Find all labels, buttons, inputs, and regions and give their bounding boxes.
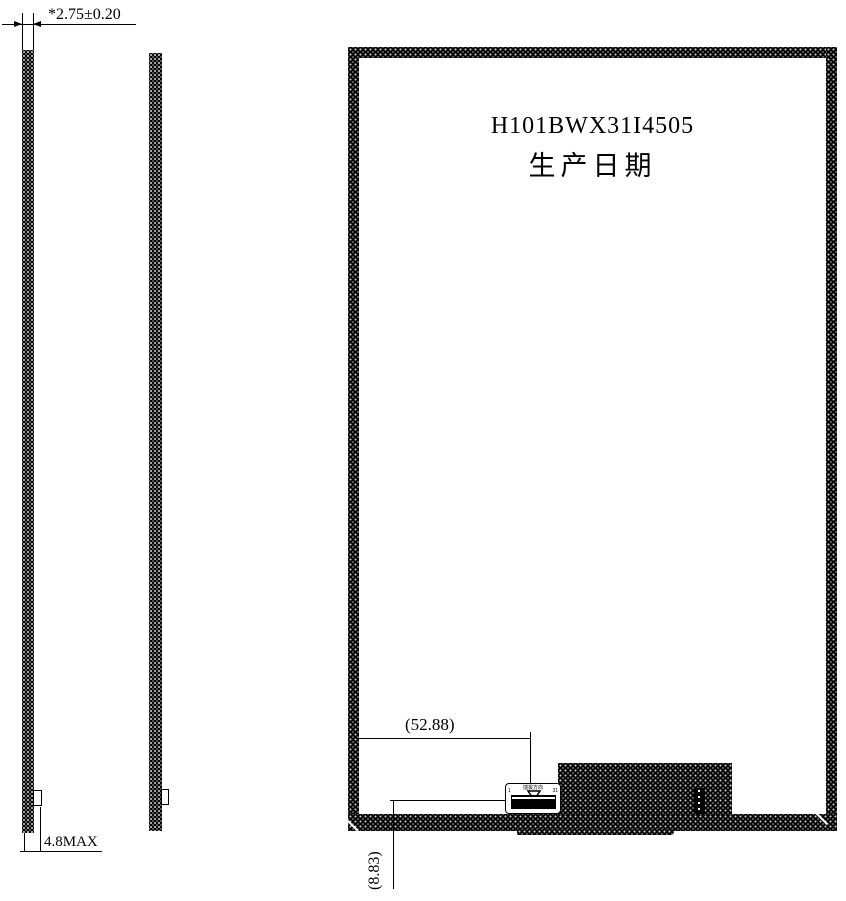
connector-contact-bar [511, 795, 556, 809]
dimension-line [20, 851, 102, 852]
extension-line [22, 13, 23, 51]
extension-line [33, 13, 34, 51]
slot-dots [698, 790, 700, 812]
fpc-protrusion [517, 829, 674, 835]
engineering-drawing: *2.75±0.20 4.8MAX H101BWX31I4505 生产日期 (5… [0, 0, 846, 901]
pcb-block-slot [694, 788, 705, 814]
extension-line [390, 800, 505, 801]
fpc-connector: 插拔方向 1 31 [505, 783, 561, 814]
panel-frame-left [348, 47, 359, 831]
thickness-dimension-label: *2.75±0.20 [48, 6, 121, 24]
pcb-block [558, 763, 732, 815]
connector-tab-side-view [161, 789, 169, 805]
connector-tab-side-view [33, 790, 42, 806]
dimension-line [358, 738, 530, 739]
arrowhead-icon [14, 21, 22, 27]
side-view-strip-right [149, 53, 162, 831]
extension-line [24, 833, 25, 852]
side-view-strip-left [22, 50, 34, 833]
panel-frame-top [348, 47, 837, 58]
pin-last-label: 31 [552, 788, 558, 794]
connector-y-dimension-label: (8.83) [366, 851, 384, 890]
connector-contact-shine [512, 797, 555, 799]
production-date-text: 生产日期 [359, 144, 826, 183]
dimension-line [530, 732, 531, 789]
extension-line [40, 807, 41, 852]
max-thickness-dimension-label: 4.8MAX [44, 834, 98, 851]
panel-model-text: H101BWX31I4505 [359, 113, 826, 140]
panel-frame-right [826, 47, 837, 831]
arrowhead-icon [33, 21, 41, 27]
pin-first-label: 1 [508, 788, 511, 794]
connector-x-dimension-label: (52.88) [405, 715, 455, 735]
dimension-line [393, 800, 394, 889]
